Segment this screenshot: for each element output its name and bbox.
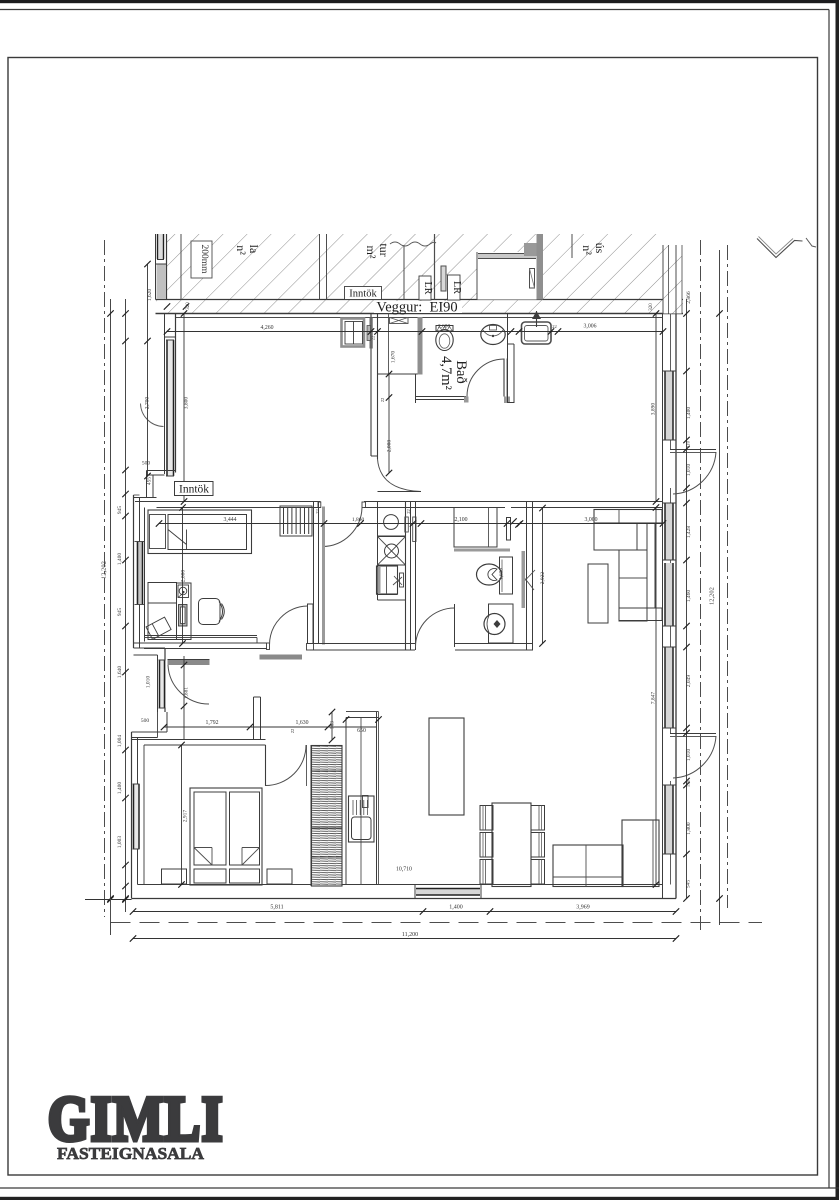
svg-text:545: 545 [686,880,692,889]
svg-text:5,811: 5,811 [270,905,283,911]
svg-text:n²: n² [234,245,248,255]
svg-text:3,890: 3,890 [651,403,657,416]
svg-text:945: 945 [117,608,123,617]
svg-text:3,006: 3,006 [583,324,596,330]
svg-text:200mm: 200mm [199,244,209,274]
svg-text:4,260: 4,260 [260,325,273,331]
svg-text:3,969: 3,969 [576,905,590,911]
svg-text:LR: LR [422,282,433,295]
svg-text:Inntök: Inntök [179,484,209,496]
svg-text:22: 22 [371,336,376,341]
svg-text:10,710: 10,710 [396,867,412,873]
svg-text:1,620: 1,620 [147,289,153,302]
svg-text:3,000: 3,000 [584,517,597,523]
svg-text:Inntök: Inntök [349,289,377,300]
svg-text:1,010: 1,010 [686,464,692,477]
svg-text:320: 320 [186,302,191,310]
svg-text:945: 945 [117,506,123,515]
svg-text:455: 455 [147,477,153,486]
svg-text:1,004: 1,004 [117,735,123,748]
svg-text:22: 22 [380,398,385,403]
svg-text:2,922: 2,922 [540,572,546,585]
svg-text:1,400: 1,400 [117,553,123,566]
svg-text:22: 22 [406,509,411,514]
svg-text:22: 22 [315,509,320,514]
svg-text:ús: ús [593,243,607,254]
svg-text:1,400: 1,400 [117,782,123,795]
svg-text:Bað: Bað [453,360,469,383]
svg-text:1,400: 1,400 [449,905,463,911]
svg-text:1,010: 1,010 [146,676,152,689]
svg-text:12,202: 12,202 [709,587,716,605]
svg-text:7,847: 7,847 [651,692,657,705]
svg-text:2,049: 2,049 [686,675,692,688]
svg-text:130: 130 [687,779,692,787]
svg-text:2,866: 2,866 [686,291,692,304]
svg-text:650: 650 [357,728,366,734]
svg-text:la: la [247,245,261,254]
svg-text:m²: m² [364,246,378,259]
svg-text:3,444: 3,444 [223,517,236,523]
svg-text:n²: n² [580,245,594,255]
svg-text:583: 583 [330,721,336,729]
svg-text:1,881: 1,881 [184,687,190,700]
svg-text:Veggur: EI90: Veggur: EI90 [376,300,457,316]
svg-text:1,792: 1,792 [205,720,218,726]
svg-text:22: 22 [290,729,295,734]
svg-text:1,400: 1,400 [686,407,692,420]
svg-text:110: 110 [687,440,692,448]
svg-text:2,917: 2,917 [183,810,189,823]
svg-text:1,860: 1,860 [352,517,365,523]
svg-text:1,600: 1,600 [499,568,505,580]
svg-text:2,600: 2,600 [438,324,451,330]
svg-text:1,428: 1,428 [686,526,692,539]
svg-text:LR: LR [451,281,462,294]
svg-text:2,800: 2,800 [181,570,187,583]
svg-text:FASTEIGNASALA: FASTEIGNASALA [57,1144,205,1163]
svg-text:22: 22 [552,324,557,329]
svg-text:11,200: 11,200 [402,932,418,938]
svg-text:1,670: 1,670 [391,351,397,364]
svg-text:tur: tur [377,243,391,256]
svg-text:1,630: 1,630 [295,720,308,726]
svg-text:1,640: 1,640 [117,666,123,679]
svg-text:4,7m²: 4,7m² [438,356,454,390]
svg-text:500: 500 [142,461,151,467]
svg-text:3,800: 3,800 [184,397,190,410]
svg-text:320: 320 [649,303,654,311]
svg-text:1,010: 1,010 [686,749,692,762]
svg-text:12,202: 12,202 [101,561,108,579]
svg-text:1,800: 1,800 [686,822,692,835]
svg-text:1,460: 1,460 [686,590,692,603]
svg-text:1,003: 1,003 [117,836,123,849]
svg-text:2,008: 2,008 [387,440,393,453]
svg-text:500: 500 [141,718,150,724]
svg-text:2,100: 2,100 [454,517,467,523]
